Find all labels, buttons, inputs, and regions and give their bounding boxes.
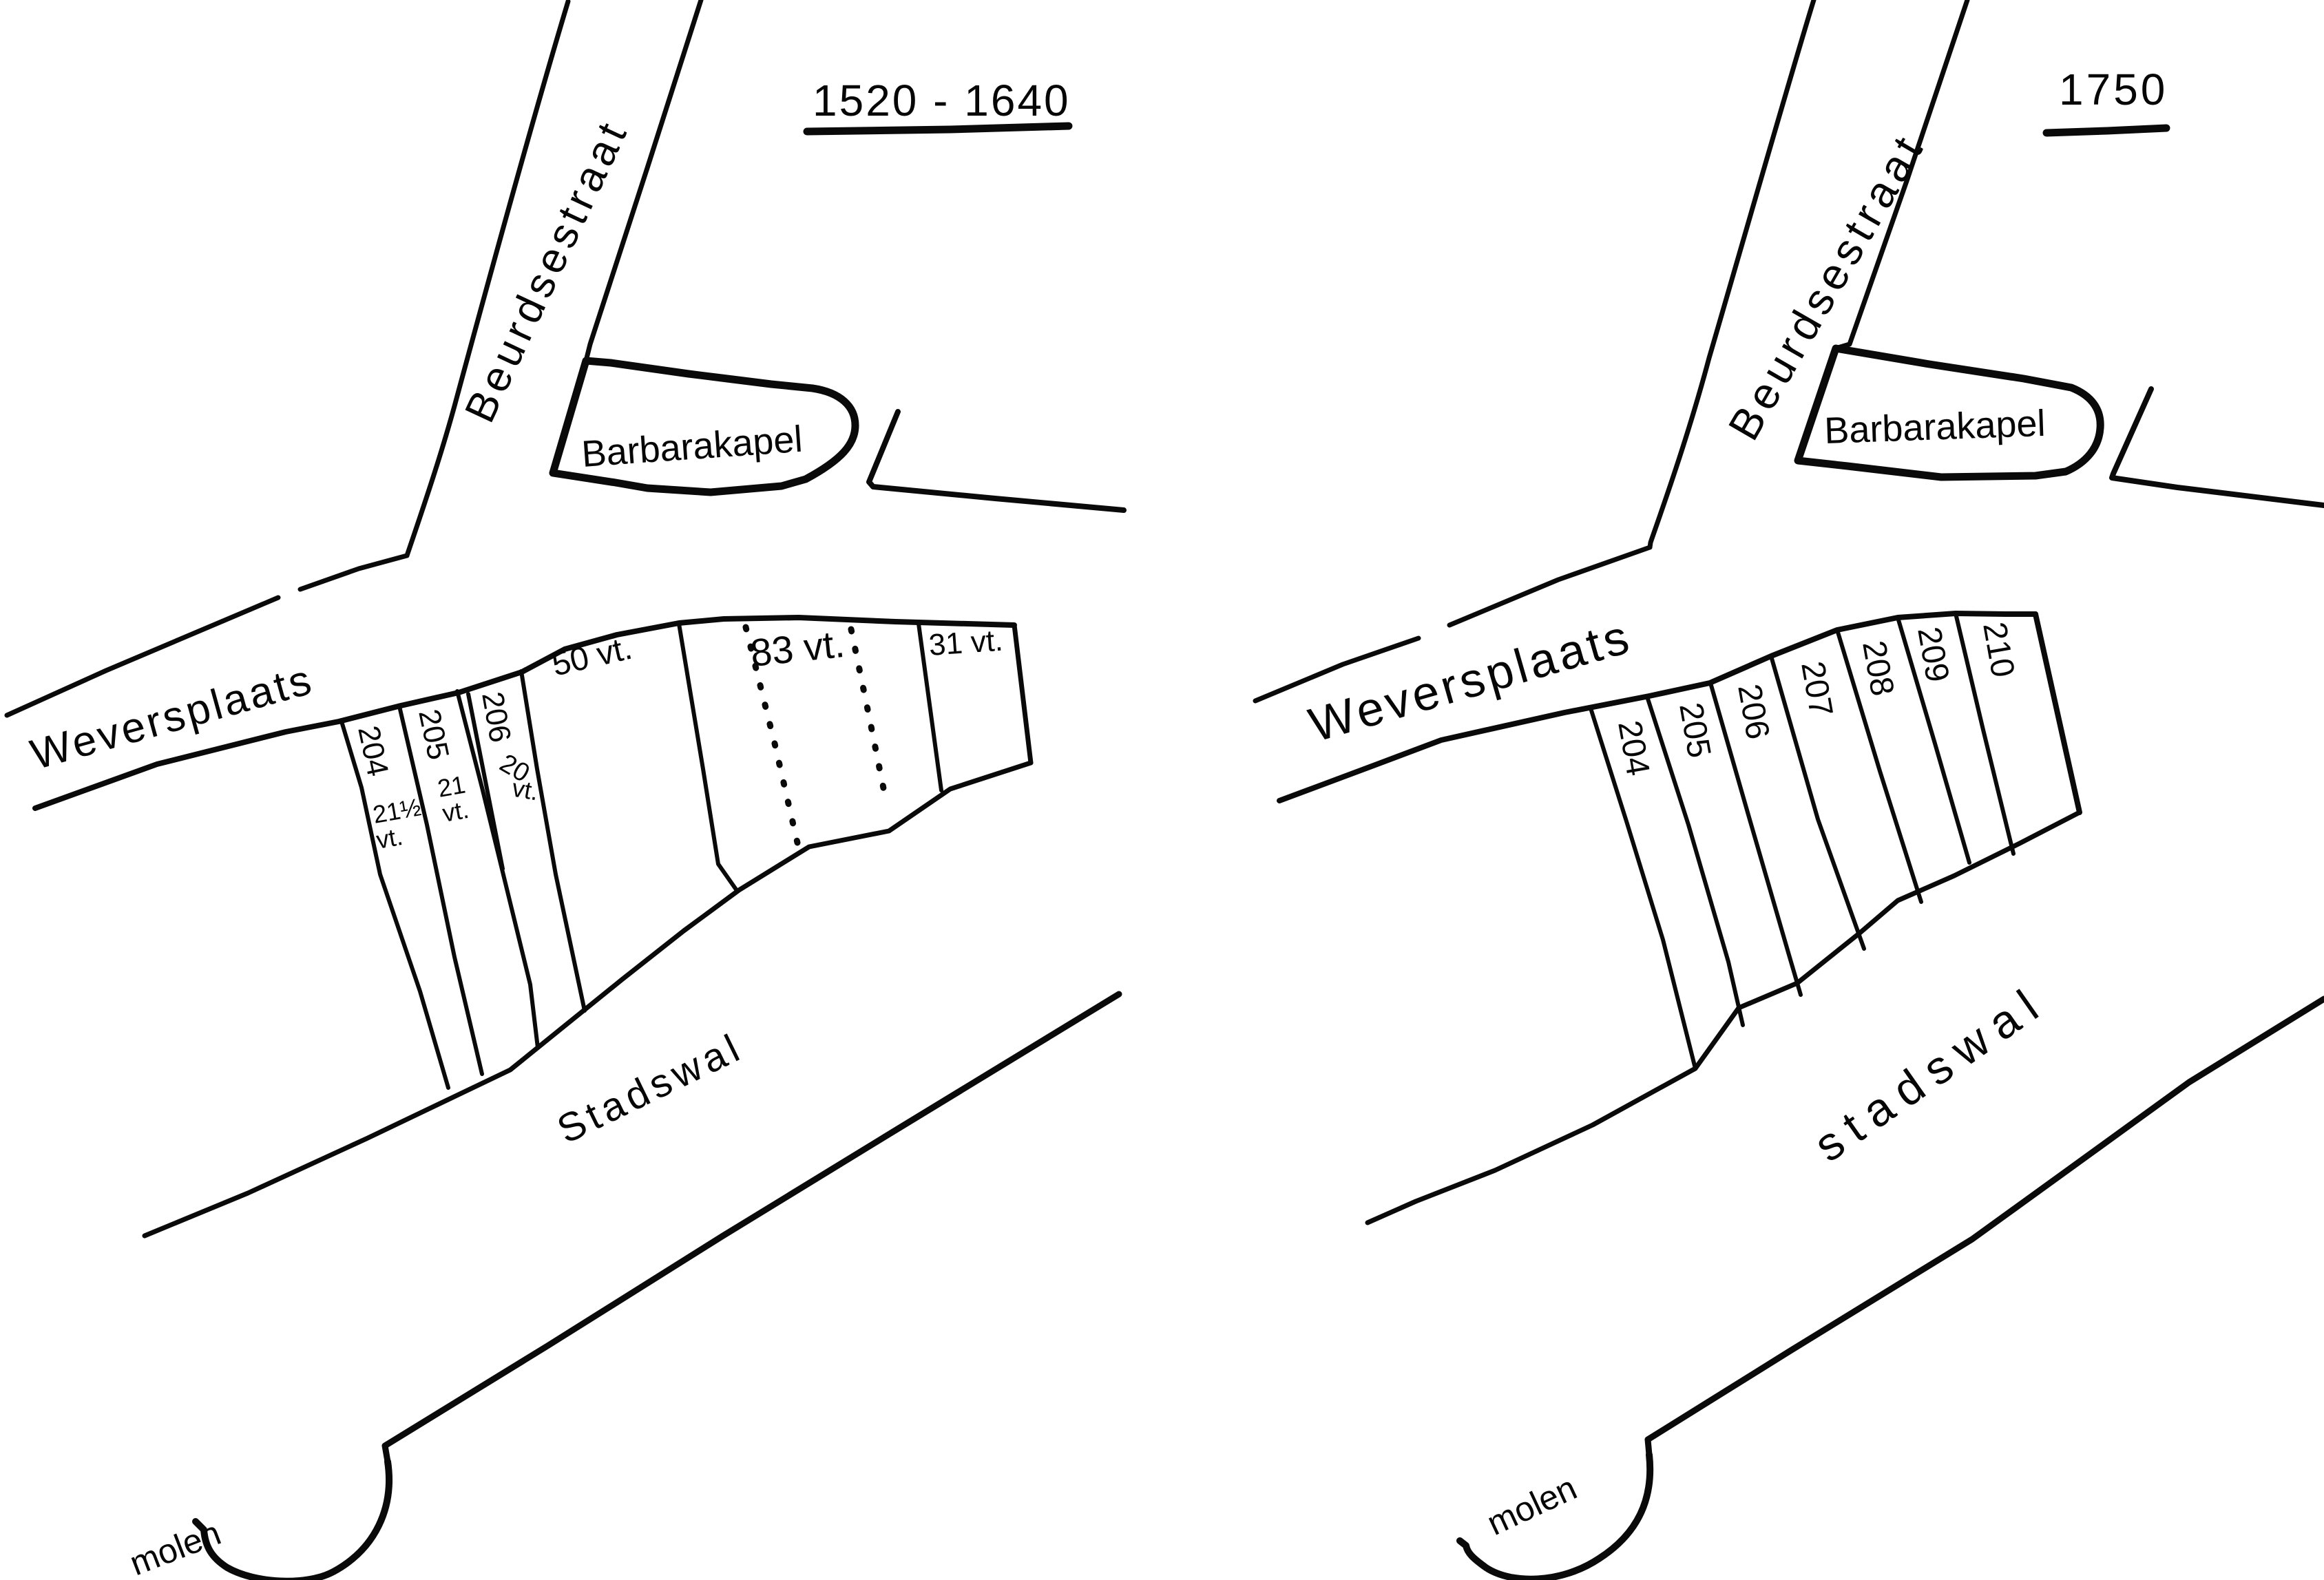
svg-text:vt.: vt. bbox=[510, 774, 541, 806]
svg-text:208: 208 bbox=[1855, 638, 1901, 699]
svg-text:stadswal: stadswal bbox=[1805, 974, 2056, 1172]
svg-text:210: 210 bbox=[1976, 620, 2021, 680]
svg-text:Weversplaats: Weversplaats bbox=[1304, 609, 1638, 752]
svg-text:Barbarakapel: Barbarakapel bbox=[580, 419, 804, 475]
svg-text:Beurdsestraat: Beurdsestraat bbox=[456, 112, 638, 429]
svg-text:molen: molen bbox=[1481, 1468, 1582, 1543]
svg-text:1750: 1750 bbox=[2059, 65, 2168, 114]
svg-text:Beurdsestraat: Beurdsestraat bbox=[1719, 124, 1935, 448]
svg-text:vt.: vt. bbox=[374, 822, 405, 854]
svg-text:204: 204 bbox=[1611, 718, 1656, 779]
svg-text:206: 206 bbox=[1730, 682, 1776, 742]
svg-text:31 vt.: 31 vt. bbox=[928, 624, 1004, 662]
svg-text:1520 - 1640: 1520 - 1640 bbox=[813, 76, 1071, 125]
svg-text:83 vt.: 83 vt. bbox=[749, 622, 847, 675]
svg-text:50 vt.: 50 vt. bbox=[549, 630, 636, 684]
svg-text:207: 207 bbox=[1794, 659, 1839, 719]
svg-text:205: 205 bbox=[1672, 700, 1717, 761]
svg-text:Barbarakapel: Barbarakapel bbox=[1823, 403, 2046, 452]
svg-text:vt.: vt. bbox=[440, 795, 471, 828]
svg-text:205: 205 bbox=[412, 706, 455, 763]
svg-text:molen: molen bbox=[125, 1513, 226, 1580]
svg-text:Stadswal: Stadswal bbox=[550, 1024, 750, 1152]
svg-text:206: 206 bbox=[475, 689, 517, 745]
